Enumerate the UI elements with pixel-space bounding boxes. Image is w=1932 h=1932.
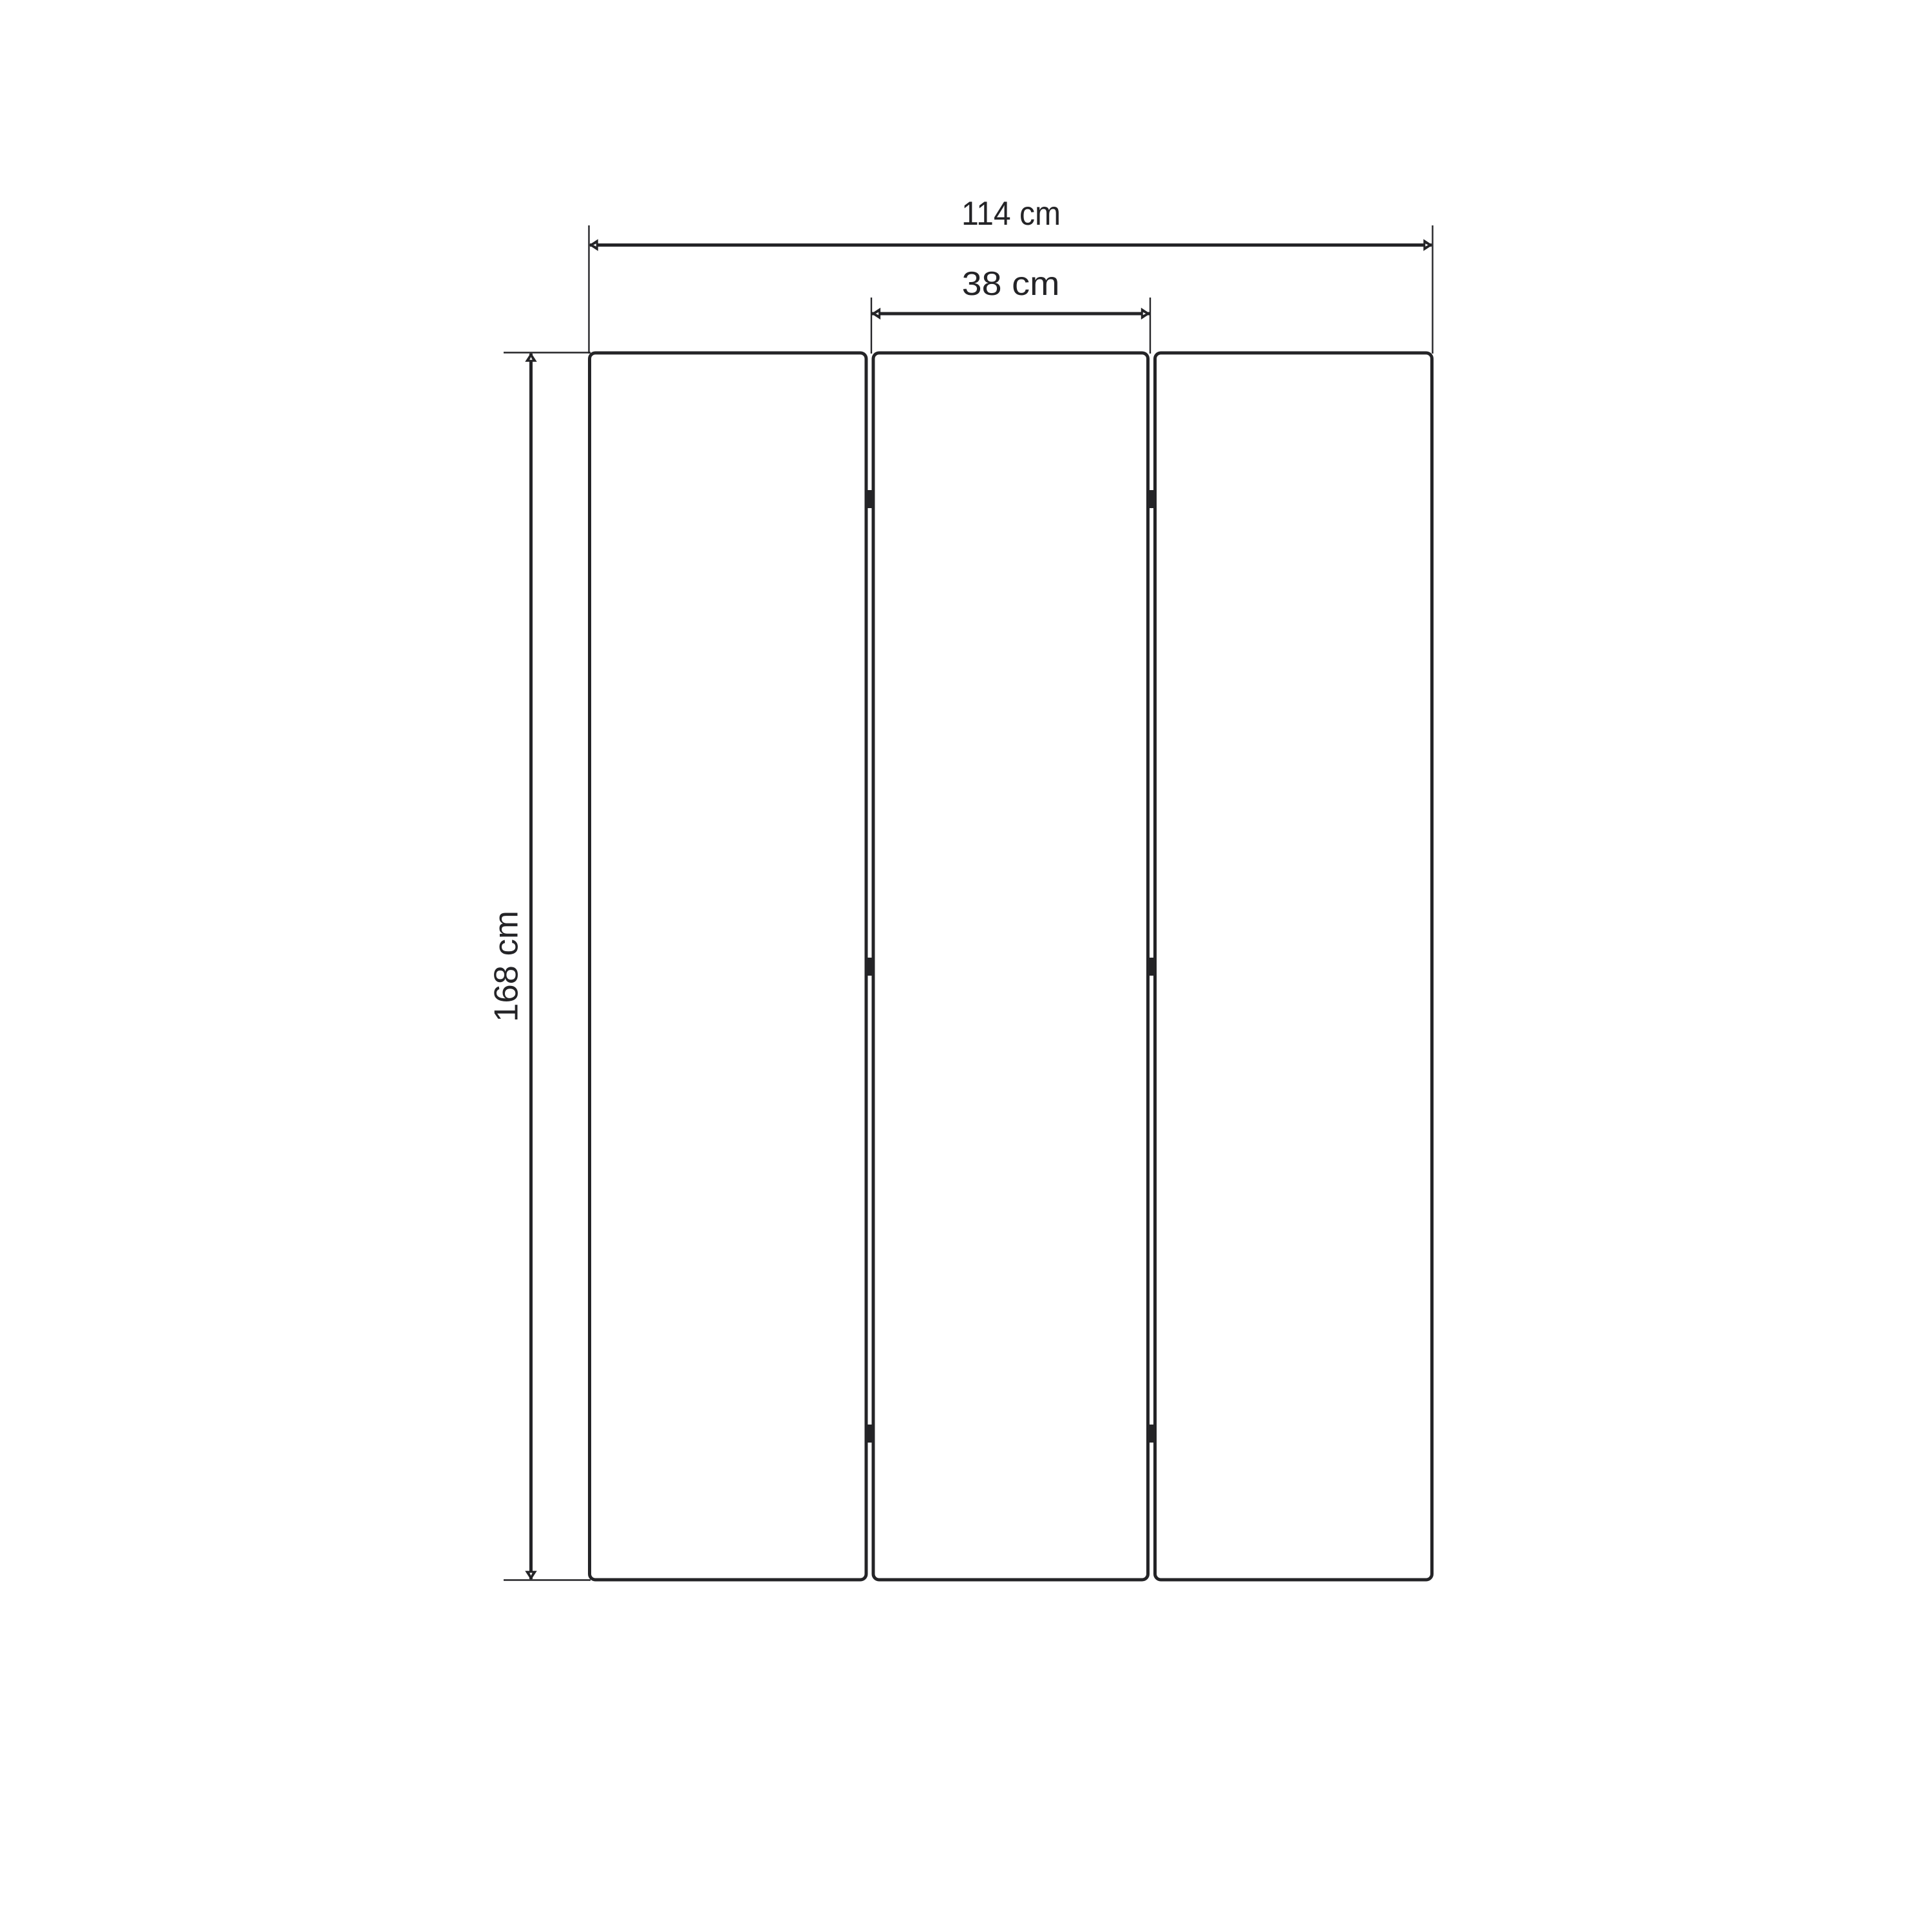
svg-text:168 cm: 168 cm [488,911,526,1022]
svg-text:114 cm: 114 cm [961,195,1061,232]
svg-text:38 cm: 38 cm [962,265,1060,303]
